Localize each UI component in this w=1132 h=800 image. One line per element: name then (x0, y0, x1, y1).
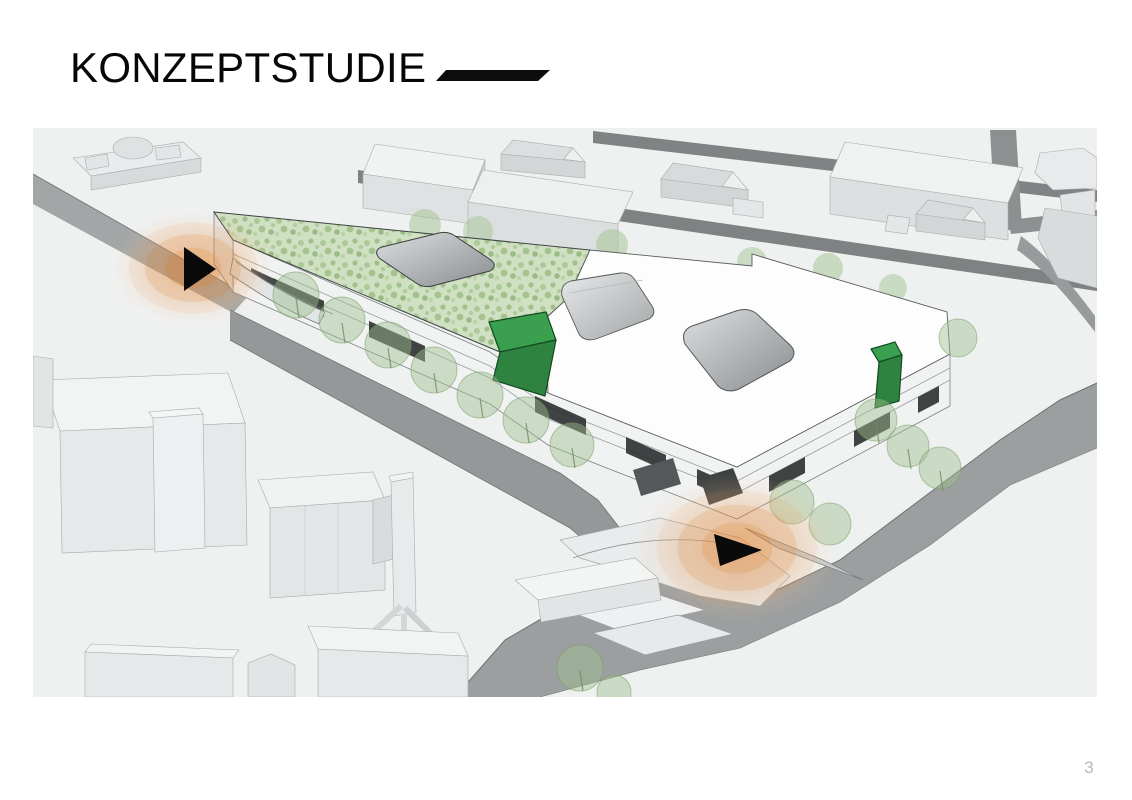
slide-header: KONZEPTSTUDIE (70, 46, 426, 96)
page-title: KONZEPTSTUDIE (70, 46, 426, 90)
slide: KONZEPTSTUDIE (0, 0, 1132, 800)
page-number: 3 (1078, 758, 1100, 778)
concept-rendering (33, 128, 1097, 697)
context-building (43, 373, 247, 553)
context-building (258, 472, 398, 598)
title-underline-dash (436, 70, 550, 81)
context-building (33, 356, 53, 428)
context-building (885, 215, 910, 234)
